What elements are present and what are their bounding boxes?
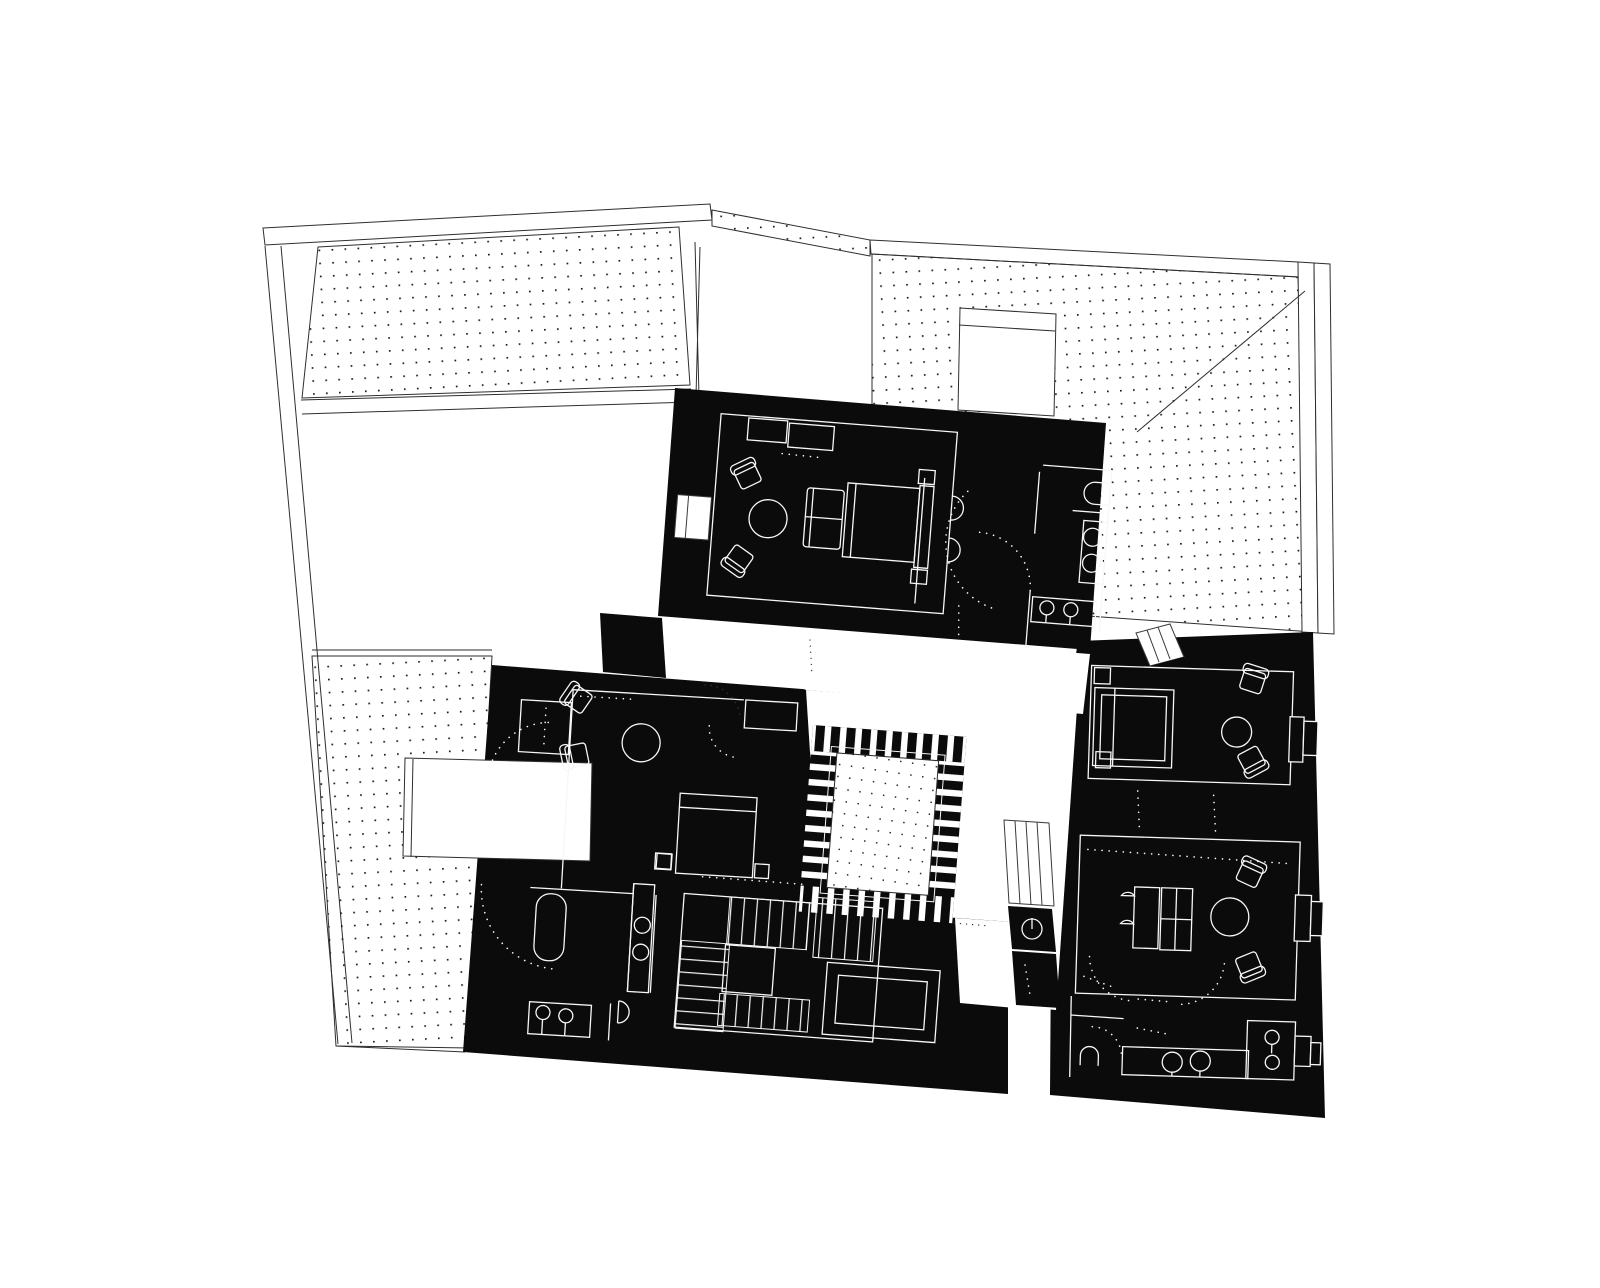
entry-door [674, 495, 711, 541]
window-bay [1294, 895, 1323, 942]
stair-flight [813, 897, 877, 961]
stair-flight [727, 897, 810, 950]
roof-hatch-strip [712, 210, 870, 256]
gap-stair [1004, 820, 1054, 906]
floor-plan-drawing [0, 0, 1600, 1288]
floor-plan-canvas [0, 0, 1600, 1288]
block-connector [600, 613, 666, 678]
courtyard [799, 725, 967, 923]
window-bay [1289, 717, 1318, 763]
chimney [958, 308, 1056, 416]
block-top [658, 388, 1106, 650]
block-right-wing [1050, 632, 1325, 1118]
stair-flight [717, 993, 809, 1032]
roof-edge-band-2 [1314, 263, 1334, 634]
roof-hatch-top-left [302, 227, 690, 398]
